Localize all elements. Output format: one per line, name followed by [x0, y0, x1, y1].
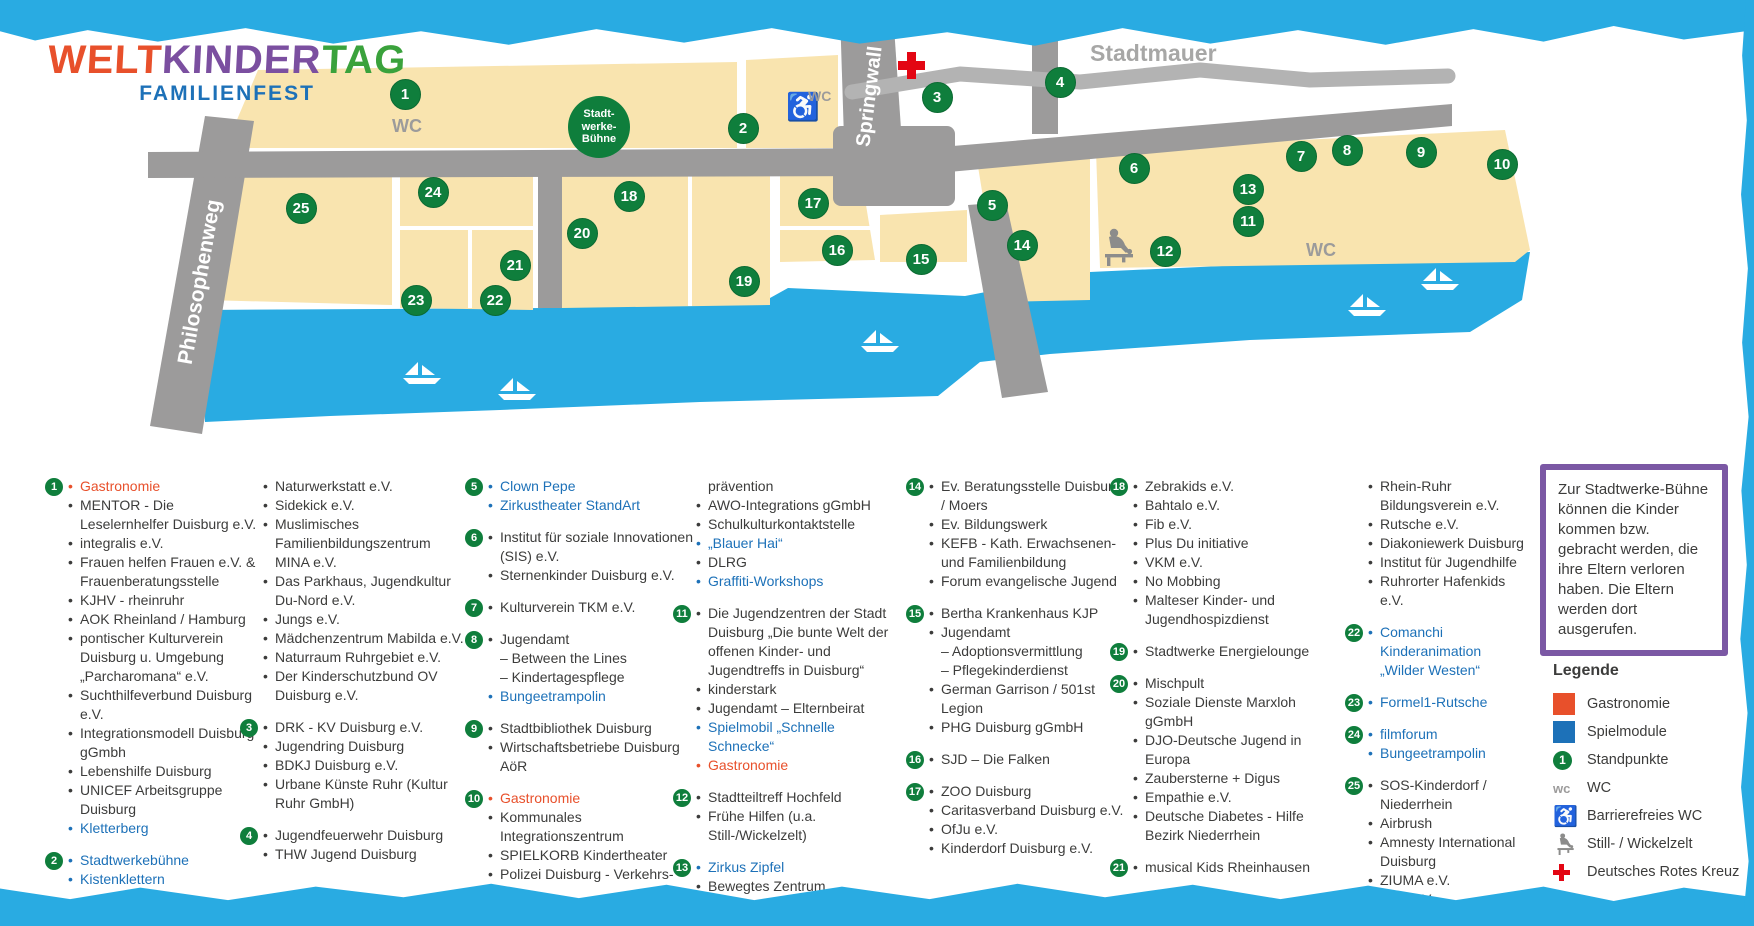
stand-entry: •pontischer Kulturverein Duisburg u. Umg… — [68, 629, 263, 686]
stand-entry-text: Sternenkinder Duisburg e.V. — [500, 567, 675, 583]
stand-group-19: 19•Stadtwerke Energielounge — [1133, 642, 1333, 661]
stand-entry-text: DJO-Deutsche Jugend in Europa — [1145, 732, 1301, 767]
stand-group-8: 8•Jugendamt– Between the Lines– Kinderta… — [488, 630, 693, 706]
stand-entry-text: Sidekick e.V. — [275, 497, 355, 513]
stand-entry-text: AOK Rheinland / Hamburg — [80, 611, 246, 627]
stand-entry: •Zebrakids e.V. — [1133, 477, 1333, 496]
stand-entry-text: Kinderdorf Duisburg e.V. — [941, 840, 1093, 856]
stand-entry-text: Fib e.V. — [1145, 516, 1192, 532]
stand-group-14: 14•Ev. Beratungsstelle Duisburg / Moers•… — [929, 477, 1124, 591]
stand-entry: prävention — [696, 477, 896, 496]
stand-entry: •„Blauer Hai“ — [696, 534, 896, 553]
listing-column-1: 1•Gastronomie•MENTOR - Die Leselernhelfe… — [68, 477, 263, 902]
stand-entry: •Stadtteiltreff Hochfeld — [696, 788, 896, 807]
stand-entry-text: Kommunales Integrationszentrum — [500, 809, 624, 844]
stand-entry-text: Naturwerkstatt e.V. — [275, 478, 393, 494]
stand-entry-text: Graffiti-Workshops — [708, 573, 823, 589]
bullet: • — [929, 801, 934, 820]
stand-number-badge: 18 — [1110, 478, 1128, 496]
stand-entry-text: Jugendring Duisburg — [275, 738, 404, 754]
map-marker-25: 25 — [286, 193, 317, 224]
map-marker-19: 19 — [729, 266, 760, 297]
bullet: • — [68, 591, 73, 610]
stand-entry-text: Clown Pepe — [500, 478, 576, 494]
stand-entry: •Stadtwerke Energielounge — [1133, 642, 1333, 661]
stadtmauer-label: Stadtmauer — [1090, 40, 1217, 67]
road-mid-vertical — [538, 176, 562, 308]
stand-entry: •Bertha Krankenhaus KJP — [929, 604, 1124, 623]
bullet: • — [1133, 807, 1138, 826]
stand-entry-text: SJD – Die Falken — [941, 751, 1050, 767]
bullet: • — [1368, 515, 1373, 534]
stage-label-3: Bühne — [582, 133, 617, 146]
stand-entry: •Gastronomie — [488, 789, 693, 808]
legend-title: Legende — [1553, 662, 1739, 680]
stand-entry: •Integrationsmodell Duisburg gGmbh — [68, 724, 263, 762]
stand-entry-text: – Kindertagespflege — [500, 669, 625, 685]
map-marker-9: 9 — [1406, 137, 1437, 168]
bullet: • — [488, 528, 493, 547]
bullet: • — [1368, 553, 1373, 572]
stand-entry: •integralis e.V. — [68, 534, 263, 553]
stand-entry-text: Bungeetrampolin — [1380, 745, 1486, 761]
stand-entry-text: Frauen helfen Frauen e.V. & Frauenberatu… — [80, 554, 255, 589]
square-spielmodule — [1553, 721, 1587, 743]
legend-item-label: WC — [1587, 780, 1611, 796]
wc-label-right: WC — [1306, 240, 1336, 261]
stand-group-17: 17•ZOO Duisburg•Caritasverband Duisburg … — [929, 782, 1124, 858]
stand-group-1: 1•Gastronomie•MENTOR - Die Leselernhelfe… — [68, 477, 263, 838]
stand-group-18: 18•Zebrakids e.V.•Bahtalo e.V.•Fib e.V.•… — [1133, 477, 1333, 629]
stand-entry-text: Zebrakids e.V. — [1145, 478, 1234, 494]
stand-entry-text: Spielmobil „Schnelle Schnecke“ — [708, 719, 835, 754]
stand-entry-text: Jugendfeuerwehr Duisburg — [275, 827, 443, 843]
bullet: • — [1368, 693, 1373, 712]
red-cross-icon — [898, 52, 925, 79]
map-marker-18: 18 — [614, 181, 645, 212]
stand-entry-text: Ruhrorter Hafenkids e.V. — [1380, 573, 1505, 608]
legend-item-label: Gastronomie — [1587, 696, 1670, 712]
legend-item-label: Spielmodule — [1587, 724, 1667, 740]
stand-entry: •Forum evangelische Jugend — [929, 572, 1124, 591]
stand-entry: •ZIUMA e.V. — [1368, 871, 1528, 890]
stand-entry: •Ev. Bildungswerk — [929, 515, 1124, 534]
bullet: • — [68, 724, 73, 743]
stand-entry-text: Amnesty International Duisburg — [1380, 834, 1515, 869]
bullet: • — [696, 680, 701, 699]
stand-entry: •Deutsche Diabetes - Hilfe Bezirk Nieder… — [1133, 807, 1333, 845]
stand-entry: •Mädchenzentrum Mabilda e.V. — [263, 629, 468, 648]
stand-number-badge: 1 — [45, 478, 63, 496]
nursing-station-icon — [1098, 228, 1138, 271]
stand-group-5: 5•Clown Pepe•Zirkustheater StandArt — [488, 477, 693, 515]
stand-number-badge: 25 — [1345, 777, 1363, 795]
stand-entry: •Spielmobil „Schnelle Schnecke“ — [696, 718, 896, 756]
stand-group-4: 4•Jugendfeuerwehr Duisburg•THW Jugend Du… — [263, 826, 468, 864]
bullet: • — [488, 865, 493, 884]
bullet: • — [263, 496, 268, 515]
bullet: • — [488, 738, 493, 757]
logo-subtitle: FAMILIENFEST — [48, 83, 406, 104]
stand-entry: •kinderstark — [696, 680, 896, 699]
stand-entry: •Diakoniewerk Duisburg — [1368, 534, 1528, 553]
lost-children-note: Zur Stadtwerke-Bühne können die Kinder k… — [1540, 464, 1728, 656]
stand-entry-text: Muslimisches Familienbildungszentrum MIN… — [275, 516, 431, 570]
bullet: • — [696, 756, 701, 775]
logo-kinder: KINDER — [161, 40, 322, 80]
stand-entry: •Stadtbibliothek Duisburg — [488, 719, 693, 738]
legend-item: Spielmodule — [1553, 718, 1739, 746]
stand-number-badge: 22 — [1345, 624, 1363, 642]
stand-entry: •Bungeetrampolin — [1368, 744, 1528, 763]
bullet: • — [488, 630, 493, 649]
stand-entry-text: Jugendamt — [500, 631, 569, 647]
bullet: • — [1133, 769, 1138, 788]
bullet: • — [696, 699, 701, 718]
legend-item: ♿Barrierefreies WC — [1553, 802, 1739, 830]
bullet: • — [1368, 572, 1373, 591]
stand-entry: •Jugendfeuerwehr Duisburg — [263, 826, 468, 845]
road-main-left — [148, 148, 912, 178]
bullet: • — [696, 858, 701, 877]
stand-number-badge: 24 — [1345, 726, 1363, 744]
stand-entry: •Gastronomie — [68, 477, 263, 496]
map-marker-11: 11 — [1233, 206, 1264, 237]
map-marker-23: 23 — [401, 285, 432, 316]
stand-entry-text: MENTOR - Die Leselernhelfer Duisburg e.V… — [80, 497, 256, 532]
red-cross-icon — [1553, 864, 1587, 881]
bullet: • — [1368, 744, 1373, 763]
stand-group-2: 2•Stadtwerkebühne•Kistenklettern — [68, 851, 263, 889]
stand-entry: •Frühe Hilfen (u.a. Still-/Wickelzelt) — [696, 807, 896, 845]
stand-group-22: 22•Comanchi Kinderanimation „Wilder West… — [1368, 623, 1528, 680]
stand-entry-text: No Mobbing — [1145, 573, 1221, 589]
stand-entry-text: Stadtbibliothek Duisburg — [500, 720, 652, 736]
stand-entry: •Comanchi Kinderanimation „Wilder Westen… — [1368, 623, 1528, 680]
stand-entry-text: pontischer Kulturverein Duisburg u. Umge… — [80, 630, 224, 684]
stand-entry-text: VKM e.V. — [1145, 554, 1203, 570]
stand-entry-text: Forum evangelische Jugend — [941, 573, 1117, 589]
bullet: • — [1133, 788, 1138, 807]
bullet: • — [1133, 731, 1138, 750]
stand-entry-text: Wirtschaftsbetriebe Duisburg AöR — [500, 739, 680, 774]
stand-entry-text: Diakoniewerk Duisburg — [1380, 535, 1524, 551]
stand-entry: •AWO-Integrations gGmbH — [696, 496, 896, 515]
stand-entry-text: Naturraum Ruhrgebiet e.V. — [275, 649, 441, 665]
map-marker-13: 13 — [1233, 174, 1264, 205]
legend-item-label: Standpunkte — [1587, 752, 1668, 768]
bullet: • — [488, 477, 493, 496]
stand-entry: •Jugendring Duisburg — [263, 737, 468, 756]
stand-entry-text: Rutsche e.V. — [1380, 516, 1459, 532]
stand-entry: •Bahtalo e.V. — [1133, 496, 1333, 515]
stand-entry: •Kinderdorf Duisburg e.V. — [929, 839, 1124, 858]
legend-item: 1Standpunkte — [1553, 746, 1739, 774]
stand-entry-text: Suchthilfeverbund Duisburg e.V. — [80, 687, 252, 722]
bullet: • — [1133, 553, 1138, 572]
map-marker-7: 7 — [1286, 141, 1317, 172]
stand-number-badge: 6 — [465, 529, 483, 547]
stand-entry: •UNICEF Arbeitsgruppe Duisburg — [68, 781, 263, 819]
accessible-wc: ♿ WC — [786, 94, 820, 121]
stand-entry-text: Bewegtes Zentrum — [708, 878, 826, 894]
bullet: • — [929, 680, 934, 699]
stand-number-badge: 7 — [465, 599, 483, 617]
stand-entry: •Stadtwerkebühne — [68, 851, 263, 870]
bullet: • — [929, 623, 934, 642]
stand-entry: •Gastronomie — [696, 756, 896, 775]
stand-number-badge: 14 — [906, 478, 924, 496]
stand-entry-text: Institut für soziale Innovationen (SIS) … — [500, 529, 693, 564]
stand-entry: •ZOO Duisburg — [929, 782, 1124, 801]
stand-entry: •Airbrush — [1368, 814, 1528, 833]
stand-number-badge: 2 — [45, 852, 63, 870]
stand-number-badge: 21 — [1110, 859, 1128, 877]
stand-entry: •DJO-Deutsche Jugend in Europa — [1133, 731, 1333, 769]
stand-entry-text: Integrationsmodell Duisburg gGmbh — [80, 725, 254, 760]
stand-entry: •Kletterberg — [68, 819, 263, 838]
stand-entry-text: musical Kids Rheinhausen — [1145, 859, 1310, 875]
legend-box: Legende GastronomieSpielmodule1Standpunk… — [1553, 662, 1739, 886]
stand-number-badge: 12 — [673, 789, 691, 807]
stand-number-badge: 17 — [906, 783, 924, 801]
stand-entry-text: THW Jugend Duisburg — [275, 846, 417, 862]
stand-entry-text: Empathie e.V. — [1145, 789, 1232, 805]
stand-entry: •Zirkus Zipfel — [696, 858, 896, 877]
stand-entry-text: Die Jugendzentren der Stadt Duisburg „Di… — [708, 605, 888, 678]
stand-entry-text: Kistenklettern — [80, 871, 165, 887]
legend-item-label: Deutsches Rotes Kreuz — [1587, 864, 1739, 880]
bullet: • — [1133, 591, 1138, 610]
bullet: • — [1133, 534, 1138, 553]
bullet: • — [68, 553, 73, 572]
stand-entry: •Formel1-Rutsche — [1368, 693, 1528, 712]
stand-entry: •Amnesty International Duisburg — [1368, 833, 1528, 871]
stand-entry: •Jugendamt — [488, 630, 693, 649]
stand-entry-text: DRK - KV Duisburg e.V. — [275, 719, 423, 735]
listing-column-6: 18•Zebrakids e.V.•Bahtalo e.V.•Fib e.V.•… — [1133, 477, 1333, 890]
stand-entry-text: Stadtwerkebühne — [80, 852, 189, 868]
stand-entry-text: Schulkulturkontaktstelle — [708, 516, 855, 532]
stand-entry-text: kinderstark — [708, 681, 776, 697]
stand-entry: •Suchthilfeverbund Duisburg e.V. — [68, 686, 263, 724]
stand-entry-text: – Pflegekinderdienst — [941, 662, 1068, 678]
stand-entry: •Die Jugendzentren der Stadt Duisburg „D… — [696, 604, 896, 680]
stand-entry-text: Jugendamt – Elternbeirat — [708, 700, 864, 716]
bullet: • — [929, 534, 934, 553]
bullet: • — [263, 718, 268, 737]
bullet: • — [263, 775, 268, 794]
stand-number-badge: 10 — [465, 790, 483, 808]
map-marker-15: 15 — [906, 244, 937, 275]
listing-column-5: 14•Ev. Beratungsstelle Duisburg / Moers•… — [929, 477, 1124, 871]
stand-entry-text: Lebenshilfe Duisburg — [80, 763, 212, 779]
bullet: • — [488, 719, 493, 738]
bullet: • — [929, 782, 934, 801]
bullet: • — [1368, 534, 1373, 553]
stand-entry: •Institut für Jugendhilfe — [1368, 553, 1528, 572]
stand-group-3: 3•DRK - KV Duisburg e.V.•Jugendring Duis… — [263, 718, 468, 813]
stand-entry: •Muslimisches Familienbildungszentrum MI… — [263, 515, 468, 572]
map-marker-4: 4 — [1045, 67, 1076, 98]
legend-items: GastronomieSpielmodule1StandpunktewcWC♿B… — [1553, 690, 1739, 886]
stand-entry-text: Caritasverband Duisburg e.V. — [941, 802, 1123, 818]
stand-number-badge: 13 — [673, 859, 691, 877]
map-marker-8: 8 — [1332, 135, 1363, 166]
stand-entry: •Institut für soziale Innovationen (SIS)… — [488, 528, 693, 566]
legend-item: Gastronomie — [1553, 690, 1739, 718]
bullet: • — [1133, 572, 1138, 591]
map-marker-16: 16 — [822, 235, 853, 266]
stand-entry: •Frauen helfen Frauen e.V. & Frauenberat… — [68, 553, 263, 591]
stand-entry: •Mischpult — [1133, 674, 1333, 693]
legend-item-label: Barrierefreies WC — [1587, 808, 1702, 824]
stand-entry: •Rutsche e.V. — [1368, 515, 1528, 534]
bullet: • — [263, 667, 268, 686]
bullet: • — [1133, 858, 1138, 877]
bullet: • — [1368, 776, 1373, 795]
stand-entry: •Clown Pepe — [488, 477, 693, 496]
bullet: • — [263, 515, 268, 534]
bullet: • — [263, 737, 268, 756]
stand-number-badge: 9 — [465, 720, 483, 738]
stand-entry-text: PHG Duisburg gGmbH — [941, 719, 1083, 735]
map-marker-10: 10 — [1487, 149, 1518, 180]
weltkindertag-flyer: Philosophenweg Springwall Stadtmauer WC … — [0, 0, 1754, 926]
stand-entry: – Adoptionsvermittlung — [929, 642, 1124, 661]
stand-entry: •Schulkulturkontaktstelle — [696, 515, 896, 534]
stand-group-16: 16•SJD – Die Falken — [929, 750, 1124, 769]
stand-entry-text: KJHV - rheinruhr — [80, 592, 184, 608]
bullet: • — [1133, 515, 1138, 534]
stand-number-badge: 8 — [465, 631, 483, 649]
bullet: • — [488, 566, 493, 585]
stand-entry-text: Jungs e.V. — [275, 611, 340, 627]
map-marker-2: 2 — [728, 113, 759, 144]
logo-tag: TAG — [321, 40, 408, 80]
stand-group-continued: prävention•AWO-Integrations gGmbH•Schulk… — [696, 477, 896, 591]
stand-entry-text: Comanchi Kinderanimation „Wilder Westen“ — [1380, 624, 1481, 678]
bullet: • — [263, 826, 268, 845]
listing-column-4: prävention•AWO-Integrations gGmbH•Schulk… — [696, 477, 896, 909]
map-marker-22: 22 — [480, 285, 511, 316]
stand-entry: •Kistenklettern — [68, 870, 263, 889]
stand-entry-text: Mischpult — [1145, 675, 1204, 691]
stand-entry: •Das Parkhaus, Jugendkultur Du-Nord e.V. — [263, 572, 468, 610]
boat-icon — [1345, 294, 1389, 323]
stand-number-badge: 3 — [240, 719, 258, 737]
stand-number-badge: 11 — [673, 605, 691, 623]
listing-column-2: •Naturwerkstatt e.V.•Sidekick e.V.•Musli… — [263, 477, 468, 877]
stand-entry-text: Deutsche Diabetes - Hilfe Bezirk Niederr… — [1145, 808, 1304, 843]
bullet: • — [1133, 496, 1138, 515]
stand-entry-text: – Adoptionsvermittlung — [941, 643, 1083, 659]
bullet: • — [488, 687, 493, 706]
bullet: • — [488, 496, 493, 515]
stand-entry-text: Zirkustheater StandArt — [500, 497, 640, 513]
stand-group-20: 20•Mischpult•Soziale Dienste Marxloh gGm… — [1133, 674, 1333, 845]
bullet: • — [263, 572, 268, 591]
stage-circle: Stadt- werke- Bühne — [568, 96, 630, 158]
stand-entry: •KEFB - Kath. Erwachsenen- und Familienb… — [929, 534, 1124, 572]
stand-entry: •DLRG — [696, 553, 896, 572]
stand-group-24: 24•filmforum•Bungeetrampolin — [1368, 725, 1528, 763]
bullet: • — [696, 553, 701, 572]
stand-entry: – Between the Lines — [488, 649, 693, 668]
stand-group-11: 11•Die Jugendzentren der Stadt Duisburg … — [696, 604, 896, 775]
bullet: • — [263, 610, 268, 629]
bullet: • — [1133, 477, 1138, 496]
stand-entry-text: Soziale Dienste Marxloh gGmbH — [1145, 694, 1296, 729]
stand-entry-text: KEFB - Kath. Erwachsenen- und Familienbi… — [941, 535, 1116, 570]
bullet: • — [929, 604, 934, 623]
boat-icon — [495, 378, 539, 407]
legend-item: Deutsches Rotes Kreuz — [1553, 858, 1739, 886]
boat-icon — [400, 362, 444, 391]
stand-entry: •Plus Du initiative — [1133, 534, 1333, 553]
bullet: • — [68, 610, 73, 629]
stand-entry-text: Zaubersterne + Digus — [1145, 770, 1280, 786]
bullet: • — [929, 515, 934, 534]
stand-entry: •Empathie e.V. — [1133, 788, 1333, 807]
bullet: • — [1368, 814, 1373, 833]
stand-entry: •Bungeetrampolin — [488, 687, 693, 706]
stand-entry-text: Das Parkhaus, Jugendkultur Du-Nord e.V. — [275, 573, 451, 608]
stand-entry-text: Institut für Jugendhilfe — [1380, 554, 1517, 570]
stand-entry: •Lebenshilfe Duisburg — [68, 762, 263, 781]
stand-entry-text: Mädchenzentrum Mabilda e.V. — [275, 630, 464, 646]
square-gastronomie — [1553, 693, 1587, 715]
map-marker-24: 24 — [418, 177, 449, 208]
stand-entry: •OfJu e.V. — [929, 820, 1124, 839]
stand-entry-text: DLRG — [708, 554, 747, 570]
stand-entry-text: Formel1-Rutsche — [1380, 694, 1487, 710]
stand-entry: •Naturraum Ruhrgebiet e.V. — [263, 648, 468, 667]
stand-entry: •SOS-Kinderdorf / Niederrhein — [1368, 776, 1528, 814]
bullet: • — [68, 496, 73, 515]
stand-entry: •Sidekick e.V. — [263, 496, 468, 515]
stand-entry-text: ZIUMA e.V. — [1380, 872, 1450, 888]
event-logo: WELTKINDERTAG FAMILIENFEST — [48, 40, 406, 104]
listing-column-3: 5•Clown Pepe•Zirkustheater StandArt6•Ins… — [488, 477, 693, 897]
bullet: • — [1133, 642, 1138, 661]
bullet: • — [68, 851, 73, 870]
stand-entry: •SPIELKORB Kindertheater — [488, 846, 693, 865]
stand-entry-text: Frühe Hilfen (u.a. Still-/Wickelzelt) — [708, 808, 816, 843]
stand-entry: •Zirkustheater StandArt — [488, 496, 693, 515]
stand-entry-text: Bertha Krankenhaus KJP — [941, 605, 1098, 621]
stand-entry: •No Mobbing — [1133, 572, 1333, 591]
bullet: • — [696, 515, 701, 534]
stand-entry-text: Bahtalo e.V. — [1145, 497, 1220, 513]
bullet: • — [68, 629, 73, 648]
stage-label-1: Stadt- — [582, 108, 617, 121]
stand-entry-text: – Between the Lines — [500, 650, 627, 666]
stand-entry-text: Stadtwerke Energielounge — [1145, 643, 1309, 659]
bullet: • — [263, 477, 268, 496]
stand-entry: •MENTOR - Die Leselernhelfer Duisburg e.… — [68, 496, 263, 534]
stand-entry: •Kommunales Integrationszentrum — [488, 808, 693, 846]
map-marker-20: 20 — [567, 218, 598, 249]
bullet: • — [1368, 833, 1373, 852]
legend-item: wcWC — [1553, 774, 1739, 802]
bullet: • — [488, 846, 493, 865]
stand-entry-text: Ev. Beratungsstelle Duisburg / Moers — [941, 478, 1121, 513]
stand-entry-text: Gastronomie — [708, 757, 788, 773]
stand-group-25: 25•SOS-Kinderdorf / Niederrhein•Airbrush… — [1368, 776, 1528, 909]
wheelchair-icon: ♿ — [1553, 804, 1587, 829]
stand-entry: •Fib e.V. — [1133, 515, 1333, 534]
